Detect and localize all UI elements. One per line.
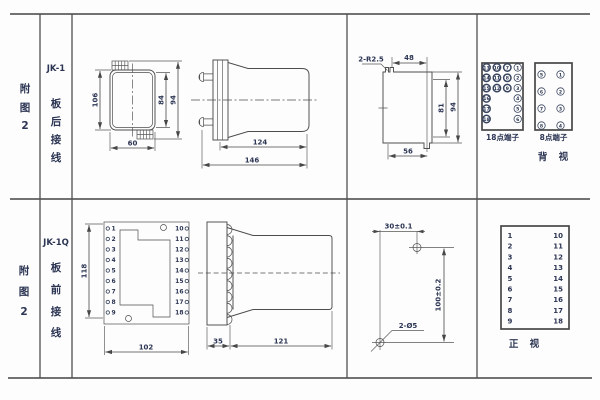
table-number-right: 15 <box>553 286 563 294</box>
rear-view-label: 背 视 <box>538 151 572 163</box>
terminal-number: 18 <box>483 117 489 123</box>
board-terminal-dot <box>106 300 109 303</box>
table-number-left: 9 <box>508 318 513 326</box>
terminal-number: 16 <box>483 96 489 102</box>
fig-label-char: 图 <box>20 102 31 114</box>
table-number-left: 3 <box>508 253 513 261</box>
terminal18-points: 131415161718101112789123456 <box>483 64 522 123</box>
board-terminal-dot <box>106 227 109 230</box>
wiring-char: 线 <box>51 151 62 164</box>
board-terminals: 110211312413514615716817918 <box>106 226 188 317</box>
board-terminal-dot <box>106 311 109 314</box>
terminal-number: 9 <box>506 86 509 92</box>
mounting-hole <box>161 225 167 231</box>
terminal-number: 11 <box>494 76 500 82</box>
terminal-number: 6 <box>540 89 543 95</box>
terminal-table-numbers: 110211312413514615716817918 <box>508 232 564 326</box>
board-terminal-dot <box>185 269 188 272</box>
board-terminal-number: 11 <box>175 236 183 243</box>
terminal-number: 3 <box>516 86 519 92</box>
front-plate <box>207 222 227 325</box>
table-number-right: 12 <box>553 253 563 261</box>
board-terminal-dot <box>185 237 188 240</box>
board-terminal-dot <box>185 279 188 282</box>
table-number-right: 18 <box>553 318 563 326</box>
front-view-label: 正 视 <box>509 338 543 350</box>
terminal-number: 5 <box>516 107 519 113</box>
terminal-number: 10 <box>494 65 500 71</box>
dim-146: 146 <box>245 157 260 165</box>
wiring-char: 前 <box>51 283 62 296</box>
row1-terminal-blocks: 131415161718101112789123456 18点端子 567812… <box>482 63 572 163</box>
fig-label-char: 2 <box>20 306 27 318</box>
terminal-bump <box>227 292 232 302</box>
terminal-stud-bottom <box>199 117 213 126</box>
board-terminal-number: 4 <box>112 257 116 264</box>
board-terminal-dot <box>106 237 109 240</box>
fig-label-char: 附 <box>20 82 31 95</box>
terminal-number: 3 <box>559 106 562 112</box>
terminal-number: 2 <box>559 89 562 95</box>
table-number-left: 4 <box>508 264 513 272</box>
table-number-right: 10 <box>553 232 563 240</box>
wiring-char: 接 <box>51 305 62 318</box>
table-number-right: 13 <box>553 264 563 272</box>
wiring-char: 接 <box>51 133 62 146</box>
board-terminal-dot <box>106 269 109 272</box>
board-terminal-number: 9 <box>112 310 116 317</box>
wiring-char: 板 <box>51 97 62 110</box>
dim-100: 100±0.2 <box>435 278 443 311</box>
board-terminal-dot <box>106 248 109 251</box>
terminal-number: 1 <box>516 65 519 71</box>
dim-81: 81 <box>438 103 446 113</box>
terminal-number: 14 <box>483 76 489 82</box>
row1-header: 附 图 2 JK-1 板 后 接 线 <box>20 64 66 164</box>
board-terminal-dot <box>185 290 188 293</box>
board-terminal-dot <box>185 311 188 314</box>
board-terminal-number: 18 <box>175 310 183 317</box>
board-terminal-number: 16 <box>175 289 183 296</box>
board-terminal-dot <box>185 258 188 261</box>
wiring-char: 板 <box>51 261 62 274</box>
dim-arrow <box>417 230 424 234</box>
dim-94-cutout: 94 <box>450 102 458 112</box>
terminal-number: 8 <box>506 76 509 82</box>
hole-size-label: 2-Ø5 <box>399 322 418 330</box>
row1-panel-cutout: 2-R2.5 48 81 94 56 <box>358 54 462 160</box>
dim-48: 48 <box>404 54 414 62</box>
board-terminal-dot <box>106 258 109 261</box>
relay-body <box>227 228 332 318</box>
terminal-bump <box>227 258 232 268</box>
dim-84: 84 <box>158 95 166 105</box>
fig-label-char: 2 <box>21 120 28 132</box>
dim-94: 94 <box>170 95 178 105</box>
board-terminal-number: 5 <box>112 268 116 275</box>
board-terminal-dot <box>185 227 188 230</box>
table-number-left: 7 <box>508 296 513 304</box>
row2-side-view: 35 121 <box>198 222 340 350</box>
table-number-left: 5 <box>508 275 513 283</box>
board-terminal-number: 2 <box>112 236 116 243</box>
terminal-number: 4 <box>559 123 562 129</box>
fig-label-char: 附 <box>19 264 30 277</box>
board-terminal-number: 12 <box>175 247 183 254</box>
drawing-canvas: 附 图 2 JK-1 板 后 接 线 106 60 84 94 <box>0 0 600 400</box>
fig-label-char: 图 <box>19 286 30 298</box>
dim-30: 30±0.1 <box>384 223 412 231</box>
board-terminal-number: 3 <box>112 247 116 254</box>
board-terminal-number: 1 <box>112 226 116 233</box>
row1-side-view: 124 146 <box>191 60 318 169</box>
dim-121: 121 <box>274 338 289 346</box>
board-terminal-number: 15 <box>175 278 183 285</box>
label-corner-radius: 2-R2.5 <box>358 56 384 64</box>
board-terminal-dot <box>185 300 188 303</box>
terminal-bump <box>227 247 232 257</box>
table-number-right: 17 <box>553 307 563 315</box>
table-number-right: 16 <box>553 296 563 304</box>
terminal-bump <box>227 225 232 235</box>
board-terminal-number: 8 <box>112 299 116 306</box>
row2-header: 附 图 2 JK-1Q 板 前 接 线 <box>19 238 69 339</box>
cutout-outline <box>383 68 432 149</box>
terminal-bump <box>227 281 232 291</box>
terminal-number: 13 <box>483 65 489 71</box>
terminal-number: 4 <box>516 96 519 102</box>
terminal-stud-top <box>199 72 213 81</box>
board-terminal-number: 14 <box>175 268 183 275</box>
table-number-left: 2 <box>508 243 513 251</box>
terminal-number: 7 <box>506 65 509 71</box>
terminal-number: 1 <box>559 72 562 78</box>
model-label: JK-1Q <box>42 238 69 248</box>
board-terminal-number: 10 <box>175 226 183 233</box>
terminal-number: 7 <box>540 106 543 112</box>
terminal-bump <box>227 236 232 246</box>
terminal-bump <box>227 270 232 280</box>
board-terminal-dot <box>185 248 188 251</box>
dim-118: 118 <box>81 264 89 279</box>
table-number-left: 6 <box>508 286 513 294</box>
case-footprint <box>120 230 170 317</box>
table-number-right: 11 <box>553 243 563 251</box>
terminal-number: 12 <box>494 86 500 92</box>
table-number-left: 1 <box>508 232 513 240</box>
dim-124: 124 <box>253 139 268 147</box>
terminal18-title: 18点端子 <box>486 132 519 142</box>
row2-board-view: 110211312413514615716817918 118 102 <box>81 222 190 355</box>
dim-arrow <box>374 230 381 234</box>
technical-drawing-sheet: 附 图 2 JK-1 板 后 接 线 106 60 84 94 <box>0 0 600 400</box>
row1-front-view: 106 60 84 94 <box>92 61 183 151</box>
wiring-char: 后 <box>51 115 62 128</box>
board-terminal-dot <box>106 290 109 293</box>
board-terminal-dot <box>106 279 109 282</box>
board-terminal-number: 6 <box>112 278 116 285</box>
terminal-number: 5 <box>540 72 543 78</box>
terminal-number: 6 <box>516 117 519 123</box>
dim-56: 56 <box>403 148 413 156</box>
mounting-hole <box>126 316 132 322</box>
board-terminal-number: 13 <box>175 257 183 264</box>
dim-35: 35 <box>213 338 223 346</box>
board-terminal-number: 7 <box>112 289 116 296</box>
terminal-number: 17 <box>483 107 489 113</box>
row2-drill-view: 30±0.1 100±0.2 2-Ø5 <box>371 223 454 352</box>
terminal-bump <box>227 303 232 313</box>
board-terminal-number: 17 <box>175 299 183 306</box>
terminal-number: 15 <box>483 86 489 92</box>
row2-front-table: 110211312413514615716817918 正 视 <box>501 226 569 350</box>
terminal-bumps <box>227 225 232 325</box>
table-number-left: 8 <box>508 307 513 315</box>
dim-60: 60 <box>128 140 138 148</box>
terminal8-points: 56781234 <box>538 71 564 130</box>
dim-106: 106 <box>92 93 100 108</box>
model-label: JK-1 <box>46 64 66 74</box>
terminal-number: 2 <box>516 76 519 82</box>
table-number-right: 14 <box>553 275 563 283</box>
terminal8-title: 8点端子 <box>540 132 568 142</box>
dim-102: 102 <box>139 344 154 352</box>
terminal-number: 8 <box>540 123 543 129</box>
wiring-char: 线 <box>51 326 62 339</box>
